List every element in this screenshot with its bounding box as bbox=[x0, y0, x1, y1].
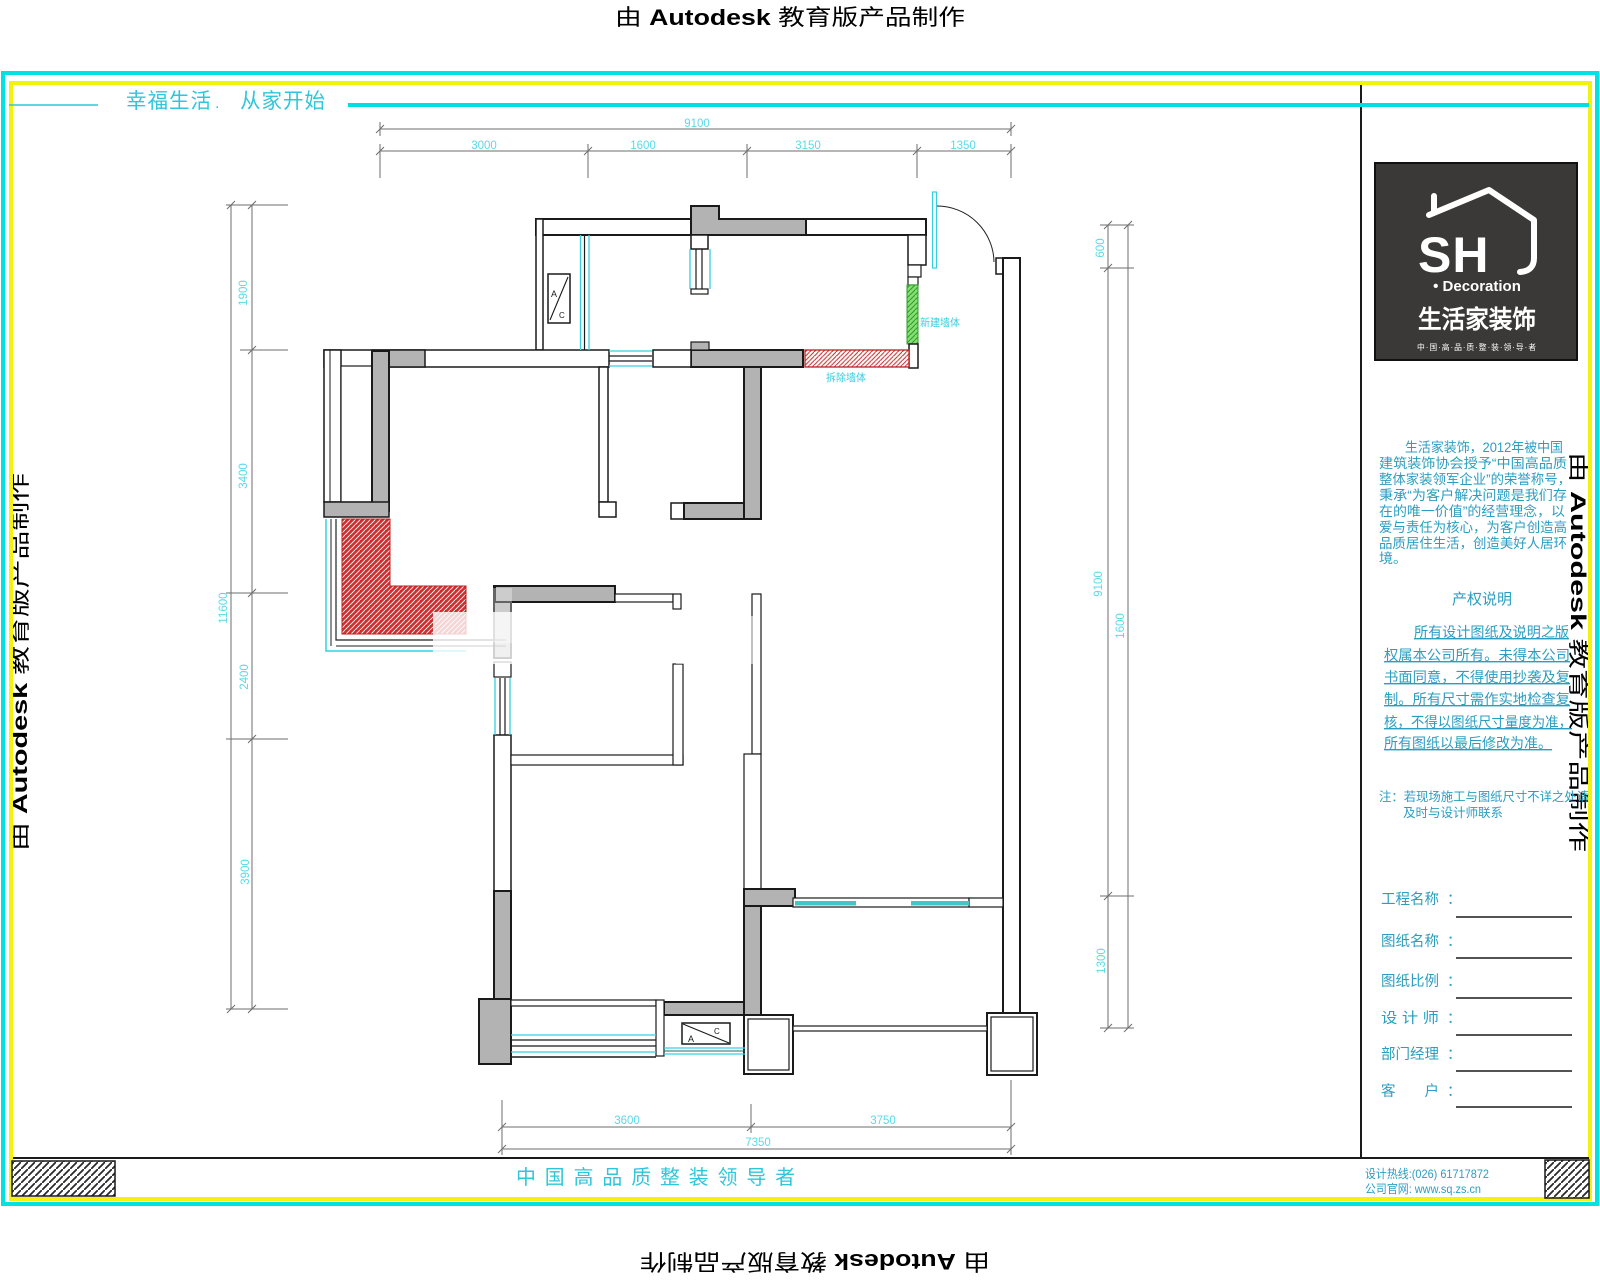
svg-text:3400: 3400 bbox=[238, 463, 250, 489]
svg-text:境。: 境。 bbox=[1379, 551, 1407, 566]
svg-text:产权说明: 产权说明 bbox=[1452, 591, 1512, 608]
svg-text:：: ： bbox=[1447, 974, 1462, 990]
svg-text:拆除墙体: 拆除墙体 bbox=[826, 371, 866, 384]
svg-text:C: C bbox=[714, 1027, 720, 1036]
svg-text:11600: 11600 bbox=[218, 592, 230, 623]
svg-text:公司官网: www.sq.zs.cn: 公司官网: www.sq.zs.cn bbox=[1365, 1181, 1481, 1196]
svg-text:新建墙体: 新建墙体 bbox=[920, 316, 960, 329]
svg-text:生活家装饰: 生活家装饰 bbox=[1418, 305, 1536, 334]
svg-text:核，不得以图纸尺寸量度为准，: 核，不得以图纸尺寸量度为准， bbox=[1384, 714, 1572, 730]
svg-text:书面同意，不得使用抄袭及复: 书面同意，不得使用抄袭及复 bbox=[1384, 669, 1570, 685]
svg-text:权属本公司所有。未得本公司: 权属本公司所有。未得本公司 bbox=[1384, 647, 1570, 663]
svg-text:设计热线:(026) 61717872: 设计热线:(026) 61717872 bbox=[1365, 1167, 1489, 1181]
svg-text:1600: 1600 bbox=[630, 140, 656, 152]
svg-text:秉承“为客户解决问题是我们存: 秉承“为客户解决问题是我们存 bbox=[1379, 487, 1567, 503]
svg-text:由 Autodesk 教育版产品制作: 由 Autodesk 教育版产品制作 bbox=[640, 1249, 990, 1274]
svg-text:中国高品质整装领导者: 中国高品质整装领导者 bbox=[516, 1166, 804, 1189]
svg-text:从家开始: 从家开始 bbox=[240, 90, 326, 113]
svg-text:1900: 1900 bbox=[238, 280, 250, 306]
svg-text:：: ： bbox=[1447, 1084, 1462, 1100]
svg-text:7350: 7350 bbox=[745, 1137, 771, 1149]
svg-text:整体家装领军企业”的荣誉称号，: 整体家装领军企业”的荣誉称号， bbox=[1379, 471, 1571, 487]
svg-text:600: 600 bbox=[1095, 238, 1107, 257]
svg-text:SH: SH bbox=[1418, 227, 1489, 283]
svg-text:：: ： bbox=[1447, 892, 1462, 908]
svg-text:生活家装饰，2012年被中国: 生活家装饰，2012年被中国 bbox=[1405, 439, 1563, 455]
svg-text:2400: 2400 bbox=[239, 664, 251, 690]
svg-text:：: ： bbox=[1447, 1011, 1462, 1027]
svg-text:工程名称: 工程名称 bbox=[1381, 891, 1439, 908]
svg-text:在的唯一价值”的经营理念，以: 在的唯一价值”的经营理念，以 bbox=[1379, 503, 1566, 519]
svg-text:由 Autodesk 教育版产品制作: 由 Autodesk 教育版产品制作 bbox=[615, 5, 965, 30]
svg-text:幸福生活: 幸福生活 bbox=[126, 90, 212, 113]
svg-text:1300: 1300 bbox=[1096, 948, 1108, 974]
svg-text:部门经理: 部门经理 bbox=[1381, 1046, 1439, 1063]
svg-text:设 计 师: 设 计 师 bbox=[1381, 1010, 1439, 1027]
svg-text:图纸名称: 图纸名称 bbox=[1381, 933, 1439, 950]
svg-text:所有设计图纸及说明之版: 所有设计图纸及说明之版 bbox=[1414, 624, 1569, 640]
svg-text:9100: 9100 bbox=[1093, 571, 1105, 597]
svg-text:客 户: 客 户 bbox=[1381, 1083, 1439, 1100]
svg-text:• Decoration: • Decoration bbox=[1433, 278, 1521, 295]
svg-text:A: A bbox=[688, 1034, 694, 1044]
svg-text:：: ： bbox=[1447, 934, 1462, 950]
svg-text:注：若现场施工与图纸尺寸不详之处请: 注：若现场施工与图纸尺寸不详之处请 bbox=[1379, 789, 1589, 804]
svg-text:3600: 3600 bbox=[614, 1115, 640, 1127]
svg-text:9100: 9100 bbox=[684, 118, 710, 130]
svg-text:3900: 3900 bbox=[240, 859, 252, 885]
svg-text:爱与责任为核心，为客户创造高: 爱与责任为核心，为客户创造高 bbox=[1379, 519, 1567, 535]
svg-text:1350: 1350 bbox=[950, 140, 976, 152]
svg-text:建筑装饰协会授予“中国高品质: 建筑装饰协会授予“中国高品质 bbox=[1379, 455, 1567, 471]
svg-text:制。所有尺寸需作实地检查复: 制。所有尺寸需作实地检查复 bbox=[1384, 691, 1570, 707]
svg-text:：: ： bbox=[1447, 1047, 1462, 1063]
svg-text:1600: 1600 bbox=[1115, 613, 1127, 639]
svg-text:3000: 3000 bbox=[471, 140, 497, 152]
svg-text:C: C bbox=[559, 311, 565, 320]
svg-text:图纸比例: 图纸比例 bbox=[1381, 973, 1439, 990]
svg-text:及时与设计师联系: 及时与设计师联系 bbox=[1403, 805, 1503, 820]
svg-text:3150: 3150 bbox=[795, 140, 821, 152]
svg-text:A: A bbox=[551, 289, 557, 299]
svg-text:品质居住生活，创造美好人居环: 品质居住生活，创造美好人居环 bbox=[1379, 536, 1567, 551]
svg-text:所有图纸以最后修改为准。: 所有图纸以最后修改为准。 bbox=[1384, 735, 1552, 751]
svg-text:.: . bbox=[215, 95, 219, 112]
svg-text:3750: 3750 bbox=[870, 1115, 896, 1127]
svg-text:中·国·高·品·质·整·装·领·导·者: 中·国·高·品·质·整·装·领·导·者 bbox=[1417, 342, 1537, 352]
